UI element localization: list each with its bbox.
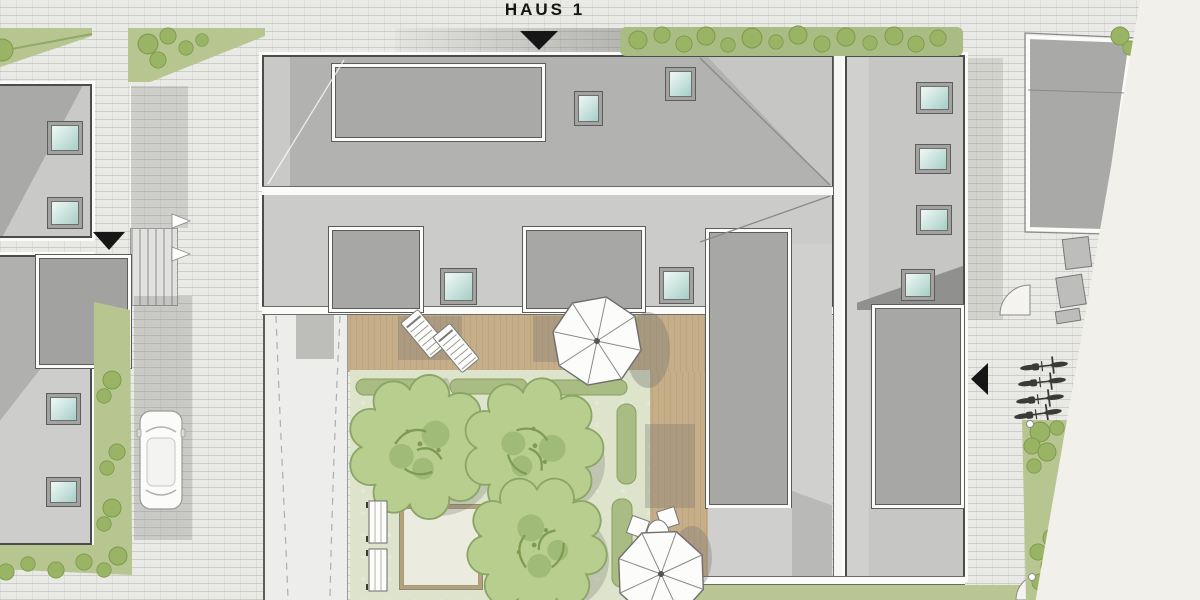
entrance-arrow-top xyxy=(520,31,558,50)
bollard xyxy=(1027,421,1034,428)
site-plan: HAUS 1 xyxy=(0,0,1200,600)
hedge-north xyxy=(620,26,963,56)
plan-overlay xyxy=(0,0,1200,600)
parasol-north xyxy=(544,288,670,395)
roof-hip-lines xyxy=(268,58,830,242)
green-strip-left-building xyxy=(0,302,132,580)
green-triangle-sidewalk xyxy=(128,28,265,82)
parked-car xyxy=(137,411,185,509)
bench xyxy=(367,549,387,591)
driveway-dashed-lines xyxy=(276,316,340,598)
bollard xyxy=(1029,574,1036,581)
stair-arrow-upper xyxy=(172,214,190,228)
stair-direction-arrows xyxy=(172,214,190,261)
entrance-arrow-left-building xyxy=(93,232,125,250)
bicycle-rack xyxy=(1013,356,1069,426)
entrance-arrow-right-wing xyxy=(971,363,988,395)
house-label: HAUS 1 xyxy=(455,0,635,20)
stair-arrow-lower xyxy=(172,247,190,261)
green-area-top-left xyxy=(0,28,92,76)
sun-loungers xyxy=(401,309,479,372)
bench xyxy=(367,501,387,543)
